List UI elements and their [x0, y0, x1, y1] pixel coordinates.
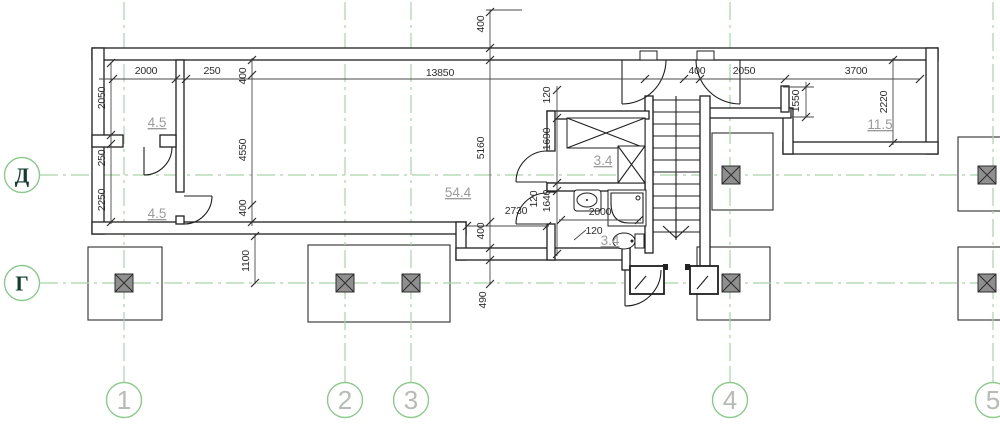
wall-segment — [92, 135, 123, 147]
dimension-label: 490 — [477, 291, 489, 308]
door-swing — [144, 147, 172, 175]
room-area-label: 4.5 — [148, 206, 167, 221]
washbasin-drain — [586, 199, 588, 201]
dimension-label: 2000 — [135, 65, 158, 77]
dimension-label: 400 — [475, 15, 487, 32]
dimension-label: 2050 — [96, 86, 108, 109]
door-swing — [622, 60, 666, 104]
vent-shafts — [567, 118, 645, 183]
wall-segment — [926, 48, 938, 154]
dimension-label: 2050 — [733, 65, 756, 77]
axis-number-label: 3 — [404, 385, 418, 415]
dimension-label: 2250 — [96, 188, 108, 211]
staircase — [653, 96, 700, 240]
dimension-label: 4550 — [237, 138, 249, 161]
shower-tray — [608, 190, 646, 226]
wall-segment — [700, 96, 710, 270]
room-area-label: 4.5 — [148, 115, 167, 130]
dimension-label: 13850 — [426, 67, 455, 79]
dimension-label: 250 — [204, 65, 221, 77]
wall-segment — [781, 86, 789, 112]
stair-direction-arrow — [663, 206, 689, 238]
floor-plan-drawing: 2000250138504002050370027302000120400205… — [0, 0, 1000, 424]
dimension-label: 1550 — [790, 89, 802, 112]
wall-segment — [622, 248, 630, 270]
axis-number-label: 5 — [986, 385, 1000, 415]
dimension-label: 2220 — [878, 90, 890, 113]
dimension-label: 1640 — [541, 189, 553, 212]
entrance-piers — [630, 264, 718, 294]
axis-number-label: 1 — [117, 385, 131, 415]
wall-segment — [456, 248, 630, 260]
wall-segment — [160, 135, 176, 147]
door-frame — [640, 51, 657, 60]
dimension-label: 1100 — [240, 250, 252, 272]
dimension-label: 2730 — [505, 205, 528, 217]
door-jamb — [663, 264, 668, 270]
axis-letter-label: Д — [15, 164, 30, 188]
wall-segment — [176, 216, 184, 224]
room-area-label: 54.4 — [445, 185, 472, 200]
pier — [630, 266, 664, 294]
dimension-label: 400 — [689, 65, 706, 77]
axis-number-label: 2 — [338, 385, 352, 415]
dimension-label: 250 — [96, 149, 108, 166]
dimension-label: 400 — [475, 222, 487, 239]
dimension-label: 120 — [528, 190, 540, 207]
footing — [712, 133, 773, 210]
wall-segment — [92, 222, 466, 234]
wall-segment — [92, 48, 938, 60]
door-frame — [697, 51, 714, 60]
wall-segment — [783, 142, 938, 154]
axis-letter-label: Г — [15, 272, 28, 296]
door-jamb — [685, 264, 690, 270]
dimension-label: 3700 — [845, 65, 868, 77]
dimension-label: 5160 — [475, 136, 487, 159]
dimension-label: 400 — [237, 199, 249, 216]
wall-segment — [547, 224, 555, 260]
room-area-label: 11.5 — [867, 117, 892, 132]
door-swing — [516, 151, 547, 182]
dimension-label: 120 — [541, 86, 553, 103]
dimension-label: 400 — [237, 67, 249, 84]
room-area-label: 3.4 — [601, 233, 620, 248]
walls — [92, 48, 938, 270]
door-swing — [184, 196, 212, 224]
dimension-label: 2000 — [589, 206, 612, 218]
toilet-tank — [635, 234, 644, 248]
stair-flight-edges — [653, 96, 676, 240]
room-area-label: 3.4 — [594, 153, 613, 168]
toilet-detail — [631, 240, 634, 243]
wall-segment — [176, 60, 184, 192]
axis-number-label: 4 — [723, 385, 737, 415]
dimension-label: 1690 — [541, 127, 553, 150]
wall-segment — [707, 108, 791, 118]
shower-drain — [636, 196, 640, 200]
